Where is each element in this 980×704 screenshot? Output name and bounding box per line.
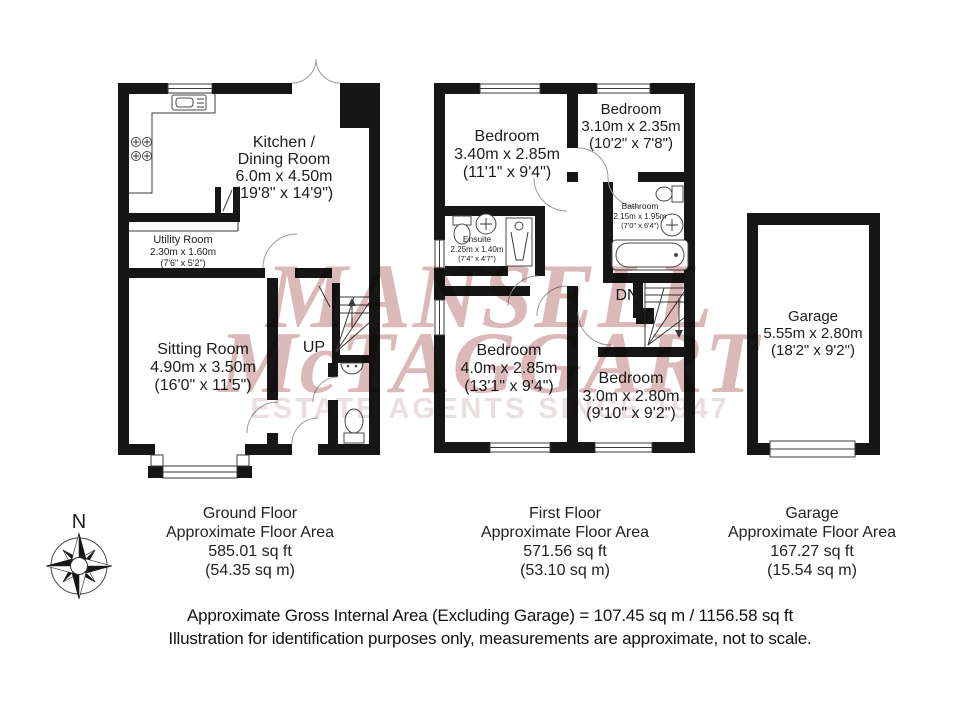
stairs-up: [336, 297, 369, 352]
compass-north-label: N: [72, 511, 86, 533]
kitchen-imperial: (19'8" x 14'9"): [235, 185, 333, 202]
bathroom-toilet: [656, 187, 672, 201]
bathroom-label: Bathroom: [622, 201, 659, 211]
front-door-arc: [292, 418, 318, 444]
kitchen-metric: 6.0m x 4.50m: [236, 168, 333, 185]
bedroom4-metric: 3.0m x 2.80m: [583, 388, 680, 405]
bedroom2-metric: 3.10m x 2.35m: [581, 118, 680, 135]
bedroom4-imperial: (9'10" x 9'2"): [586, 405, 676, 422]
bathroom-metric: 2.15m x 1.95m: [614, 212, 667, 221]
ground-doors: [223, 190, 338, 444]
first-floor-plan: Bedroom 3.40m x 2.85m (11'1" x 9'4") Bed…: [428, 50, 713, 465]
garage-caption: Garage Approximate Floor Area 167.27 sq …: [692, 504, 932, 580]
ground-floor-caption: Ground Floor Approximate Floor Area 585.…: [130, 504, 370, 580]
garage-caption-title: Garage: [692, 504, 932, 523]
ground-caption-area-ft: 585.01 sq ft: [130, 542, 370, 561]
wc-fixtures: [341, 363, 364, 443]
first-caption-subtitle: Approximate Floor Area: [445, 523, 685, 542]
wc-toilet: [345, 409, 363, 433]
bedroom1-imperial: (11'1" x 9'4"): [463, 164, 551, 181]
first-floor-caption: First Floor Approximate Floor Area 571.5…: [445, 504, 685, 580]
garage-imperial: (18'2" x 9'2"): [771, 342, 855, 359]
kitchen-label: Kitchen /: [253, 134, 316, 151]
garage-caption-subtitle: Approximate Floor Area: [692, 523, 932, 542]
compass-rose: N: [35, 498, 130, 613]
wc-door-arc: [313, 377, 338, 402]
bedroom4-door-arc: [578, 312, 611, 345]
bedroom3-metric: 4.0m x 2.85m: [461, 360, 558, 377]
footer-gross-internal-area: Approximate Gross Internal Area (Excludi…: [0, 606, 980, 626]
hob: [132, 138, 152, 161]
ensuite-metric: 2.25m x 1.40m: [451, 245, 504, 254]
bedroom3-label: Bedroom: [477, 342, 542, 359]
bedroom1-metric: 3.40m x 2.85m: [454, 146, 560, 163]
ensuite-imperial: (7'4" x 4'7"): [458, 254, 496, 263]
ground-caption-subtitle: Approximate Floor Area: [130, 523, 370, 542]
compass-star: [46, 533, 112, 599]
footer-disclaimer: Illustration for identification purposes…: [0, 629, 980, 649]
dn-label: DN: [615, 287, 638, 304]
ground-floor-plan: Kitchen / Dining Room 6.0m x 4.50m (19'8…: [113, 50, 398, 485]
bedroom2-door-arc: [578, 148, 608, 178]
utility-shelf: [129, 222, 238, 231]
sitting-imperial: (16'0" x 11'5"): [154, 377, 251, 394]
floorplan-page: Kitchen / Dining Room 6.0m x 4.50m (19'8…: [0, 0, 980, 704]
ground-walls: [118, 83, 380, 478]
kitchen-hall-door-arc: [263, 234, 297, 268]
kitchen-counter: [129, 93, 215, 193]
bedroom2-label: Bedroom: [601, 101, 662, 118]
wc-basin: [341, 363, 363, 374]
garage-plan: Garage 5.55m x 2.80m (18'2" x 9'2"): [740, 205, 920, 465]
stairs-cupboard-door-leaf: [319, 286, 330, 307]
ground-caption-area-m: (54.35 sq m): [130, 561, 370, 580]
ground-room-labels: Kitchen / Dining Room 6.0m x 4.50m (19'8…: [150, 134, 333, 394]
garage-caption-area-m: (15.54 sq m): [692, 561, 932, 580]
bedroom3-door-arc: [537, 286, 567, 316]
sitting-metric: 4.90m x 3.50m: [150, 359, 256, 376]
garage-labels: Garage 5.55m x 2.80m (18'2" x 9'2"): [763, 308, 862, 359]
utility-label: Utility Room: [153, 234, 212, 246]
utility-imperial: (7'6" x 5'2"): [160, 258, 205, 268]
ensuite-label: Ensuite: [463, 234, 492, 244]
bedroom1-label: Bedroom: [475, 128, 540, 145]
garage-label: Garage: [788, 308, 838, 325]
utility-door-leaf: [223, 190, 232, 211]
first-caption-title: First Floor: [445, 504, 685, 523]
bathroom-toilet-tank: [672, 186, 683, 202]
bedroom2-imperial: (10'2" x 7'8"): [589, 135, 673, 152]
ground-caption-title: Ground Floor: [130, 504, 370, 523]
french-doors: [292, 59, 340, 83]
kitchen-label-2: Dining Room: [238, 151, 330, 168]
first-caption-area-m: (53.10 sq m): [445, 561, 685, 580]
utility-metric: 2.30m x 1.60m: [150, 247, 216, 258]
sitting-room-door-arc: [247, 402, 278, 433]
up-label: UP: [303, 339, 325, 356]
garage-caption-area-ft: 167.27 sq ft: [692, 542, 932, 561]
ground-windows: [151, 84, 249, 478]
garage-metric: 5.55m x 2.80m: [763, 325, 862, 342]
bathroom-imperial: (7'0" x 6'4"): [621, 221, 659, 230]
bedroom4-label: Bedroom: [599, 370, 664, 387]
bedroom3-imperial: (13'1" x 9'4"): [464, 378, 554, 395]
sitting-label: Sitting Room: [157, 341, 249, 358]
first-caption-area-ft: 571.56 sq ft: [445, 542, 685, 561]
